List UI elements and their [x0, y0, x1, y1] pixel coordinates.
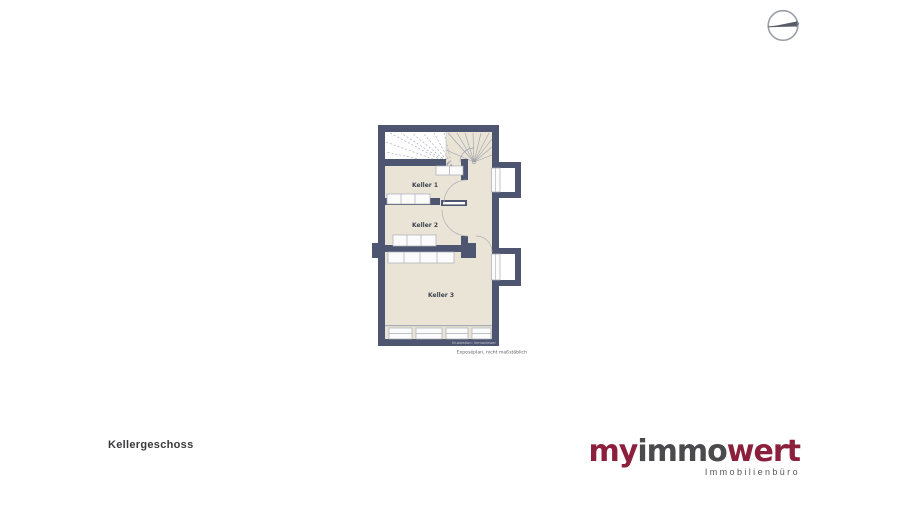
logo-text-immo: immo — [637, 434, 726, 469]
plan-disclaimer: Exposéplan, nicht maßstäblich — [457, 349, 527, 356]
floorplan-drawing: Keller 1 Keller 2 Keller 3 Illustration:… — [370, 115, 530, 360]
logo-text-my: my — [589, 434, 638, 469]
logo-text-wert: wert — [727, 434, 800, 469]
logo-wordmark: myimmowert — [589, 437, 800, 467]
floor-title: Kellergeschoss — [108, 439, 194, 451]
logo-subtitle: Immobilienbüro — [589, 468, 800, 477]
floorplan: Keller 1 Keller 2 Keller 3 Illustration:… — [370, 115, 530, 360]
room-label-keller-1: Keller 1 — [412, 182, 438, 189]
bottom-windows — [389, 328, 491, 339]
compass-icon — [764, 7, 802, 45]
company-logo: myimmowert Immobilienbüro — [589, 437, 800, 477]
room-label-keller-3: Keller 3 — [428, 292, 454, 299]
room-label-keller-2: Keller 2 — [412, 222, 438, 229]
window-bay-lower — [492, 248, 522, 286]
plan-watermark: Illustration: immoviewer — [452, 341, 496, 345]
page-background: Keller 1 Keller 2 Keller 3 Illustration:… — [0, 0, 900, 507]
bottom-sill-line — [385, 325, 492, 326]
